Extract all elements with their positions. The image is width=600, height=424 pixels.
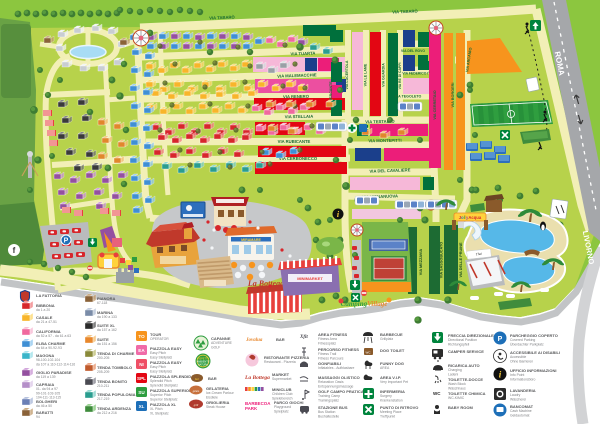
svg-text:VIA GUARDIA: VIA GUARDIA	[382, 63, 386, 87]
svg-text:VIA TUARTA: VIA TUARTA	[290, 51, 315, 57]
svg-text:P: P	[64, 238, 69, 245]
svg-text:PARK: PARK	[245, 406, 258, 411]
svg-text:da 212 a 216: da 212 a 216	[97, 411, 117, 415]
svg-text:200-205: 200-205	[97, 356, 110, 360]
svg-text:VIA BORGERI: VIA BORGERI	[451, 83, 455, 108]
svg-text:Steak House: Steak House	[206, 405, 226, 409]
svg-text:Easy Stellplatz: Easy Stellplatz	[150, 355, 173, 359]
svg-text:VIA DELLE PRUINE: VIA DELLE PRUINE	[459, 242, 463, 278]
svg-text:DOG TOILET: DOG TOILET	[380, 348, 405, 353]
svg-text:MIRAMARE: MIRAMARE	[241, 238, 261, 242]
svg-text:MINIMARKET: MINIMARKET	[297, 276, 323, 281]
svg-text:WC: WC	[366, 351, 372, 355]
svg-text:SPL: SPL	[137, 376, 146, 381]
svg-text:EA: EA	[138, 348, 145, 353]
svg-text:Bushaltestelle: Bushaltestelle	[318, 414, 339, 418]
svg-text:Informationsbüro: Informationsbüro	[510, 377, 536, 381]
svg-text:VIA MEZZAVIA: VIA MEZZAVIA	[419, 249, 423, 276]
svg-text:da 52 a 57 - da 61 a 63: da 52 a 57 - da 61 a 63	[36, 334, 71, 338]
svg-text:BAR: BAR	[276, 337, 285, 342]
svg-text:La Bottega: La Bottega	[244, 375, 270, 381]
svg-text:WC: WC	[433, 391, 441, 396]
svg-text:VIA FEDERICO I°: VIA FEDERICO I°	[402, 72, 430, 76]
svg-text:Entspannungsmassage: Entspannungsmassage	[318, 384, 354, 388]
svg-text:VIA LE LAME: VIA LE LAME	[364, 63, 368, 86]
svg-text:XL: XL	[139, 404, 145, 409]
svg-text:Geldautomat: Geldautomat	[510, 413, 529, 417]
svg-text:Superior Stellplatz: Superior Stellplatz	[150, 397, 178, 401]
svg-text:VIA SASSOBUCATO: VIA SASSOBUCATO	[440, 242, 444, 278]
svg-text:Trainingsplatz: Trainingsplatz	[318, 398, 339, 402]
svg-text:Ohne Barrieren: Ohne Barrieren	[510, 359, 533, 363]
svg-text:f: f	[13, 246, 16, 255]
svg-text:Wäscherei: Wäscherei	[510, 397, 526, 401]
svg-text:da 190 a 133: da 190 a 133	[97, 315, 117, 319]
svg-text:Restaurant - Pizzeria: Restaurant - Pizzeria	[264, 360, 296, 364]
svg-text:Spielplatz: Spielplatz	[274, 409, 289, 413]
svg-text:SU: SU	[138, 390, 145, 395]
svg-text:Krankenstation: Krankenstation	[380, 398, 403, 402]
svg-text:JollyAcqua: JollyAcqua	[459, 215, 482, 220]
svg-text:67-118: 67-118	[97, 301, 107, 305]
svg-text:Jovalua: Jovalua	[245, 338, 263, 343]
svg-text:VIA RE DI CAPPI: VIA RE DI CAPPI	[398, 63, 402, 90]
svg-text:da 21 a 47-51: da 21 a 47-51	[36, 320, 57, 324]
svg-text:Supermarket: Supermarket	[272, 377, 291, 381]
svg-text:Ladeni: Ladeni	[448, 372, 458, 376]
svg-text:Splendid Stellplatz: Splendid Stellplatz	[150, 383, 178, 387]
svg-text:gelato: gelato	[193, 390, 200, 393]
svg-text:Überdachter Parkplatz: Überdachter Parkplatz	[510, 342, 544, 346]
svg-text:Xfit: Xfit	[299, 335, 308, 340]
svg-text:da 151 a 156: da 151 a 156	[97, 342, 117, 346]
svg-text:210-211: 210-211	[97, 384, 109, 388]
svg-text:OPERATOR: OPERATOR	[150, 337, 169, 341]
svg-text:VIA TEGOLETO: VIA TEGOLETO	[395, 95, 422, 99]
svg-text:Inflatables - Aufblasbare: Inflatables - Aufblasbare	[318, 366, 354, 370]
svg-text:Thai: Thai	[476, 252, 483, 257]
svg-text:VIA RENERO: VIA RENERO	[283, 94, 310, 99]
svg-text:Fitness Parcours: Fitness Parcours	[318, 356, 344, 360]
svg-text:da 46 a 50: da 46 a 50	[36, 404, 52, 408]
svg-text:217-219: 217-219	[97, 397, 110, 401]
svg-text:VIA CERRETAIO: VIA CERRETAIO	[433, 90, 437, 119]
svg-text:da 1 a 20: da 1 a 20	[36, 308, 50, 312]
svg-text:VIA STELLAIA: VIA STELLAIA	[285, 114, 314, 119]
svg-text:94: 94	[36, 415, 40, 419]
svg-text:da 119 a 139: da 119 a 139	[36, 375, 56, 379]
svg-text:Richtungspfeil: Richtungspfeil	[448, 342, 470, 346]
svg-text:CAMPER SERVICE: CAMPER SERVICE	[448, 349, 484, 354]
svg-text:grill: grill	[194, 404, 199, 407]
svg-text:Eisdiele: Eisdiele	[206, 395, 218, 399]
svg-text:Very Important Pet: Very Important Pet	[380, 380, 408, 384]
svg-text:VIA DEL ROVO: VIA DEL ROVO	[401, 49, 425, 53]
svg-text:VIA LUCERTOLA: VIA LUCERTOLA	[345, 60, 349, 89]
svg-text:NATURA: NATURA	[198, 364, 208, 367]
svg-text:Grillplatz: Grillplatz	[380, 337, 393, 341]
svg-text:da 157 a 162: da 157 a 162	[97, 328, 117, 332]
svg-text:da 64 a 90-92-93: da 64 a 90-92-93	[36, 346, 62, 350]
svg-text:WC-KIMIC: WC-KIMIC	[448, 396, 465, 400]
svg-text:La Bottega: La Bottega	[247, 279, 284, 288]
svg-text:LA FATTORIA: LA FATTORIA	[36, 293, 62, 298]
svg-text:205-209: 205-209	[97, 370, 110, 374]
svg-text:AREA: AREA	[380, 366, 390, 370]
svg-text:VIA RUBICANTE: VIA RUBICANTE	[278, 139, 311, 144]
svg-text:BABY ROOM: BABY ROOM	[448, 405, 473, 410]
svg-text:da 107 a 110-112-114-116: da 107 a 110-112-114-116	[36, 362, 75, 366]
svg-text:BAR: BAR	[208, 376, 217, 381]
svg-text:GOLF: GOLF	[211, 345, 220, 349]
svg-text:VIA MONTEPITTI: VIA MONTEPITTI	[368, 138, 401, 144]
svg-text:Treffpunkt: Treffpunkt	[380, 414, 395, 418]
svg-text:XL Stellplatz: XL Stellplatz	[150, 411, 169, 415]
svg-text:NI: NI	[139, 362, 144, 367]
svg-text:Easy Stellplatz: Easy Stellplatz	[150, 369, 173, 373]
svg-text:P: P	[498, 336, 503, 343]
svg-text:Fitnessplatz: Fitnessplatz	[318, 341, 336, 345]
svg-text:Wäschhaus: Wäschhaus	[448, 386, 466, 390]
svg-text:CampingVillage: CampingVillage	[341, 300, 388, 308]
svg-text:TO: TO	[138, 334, 145, 339]
